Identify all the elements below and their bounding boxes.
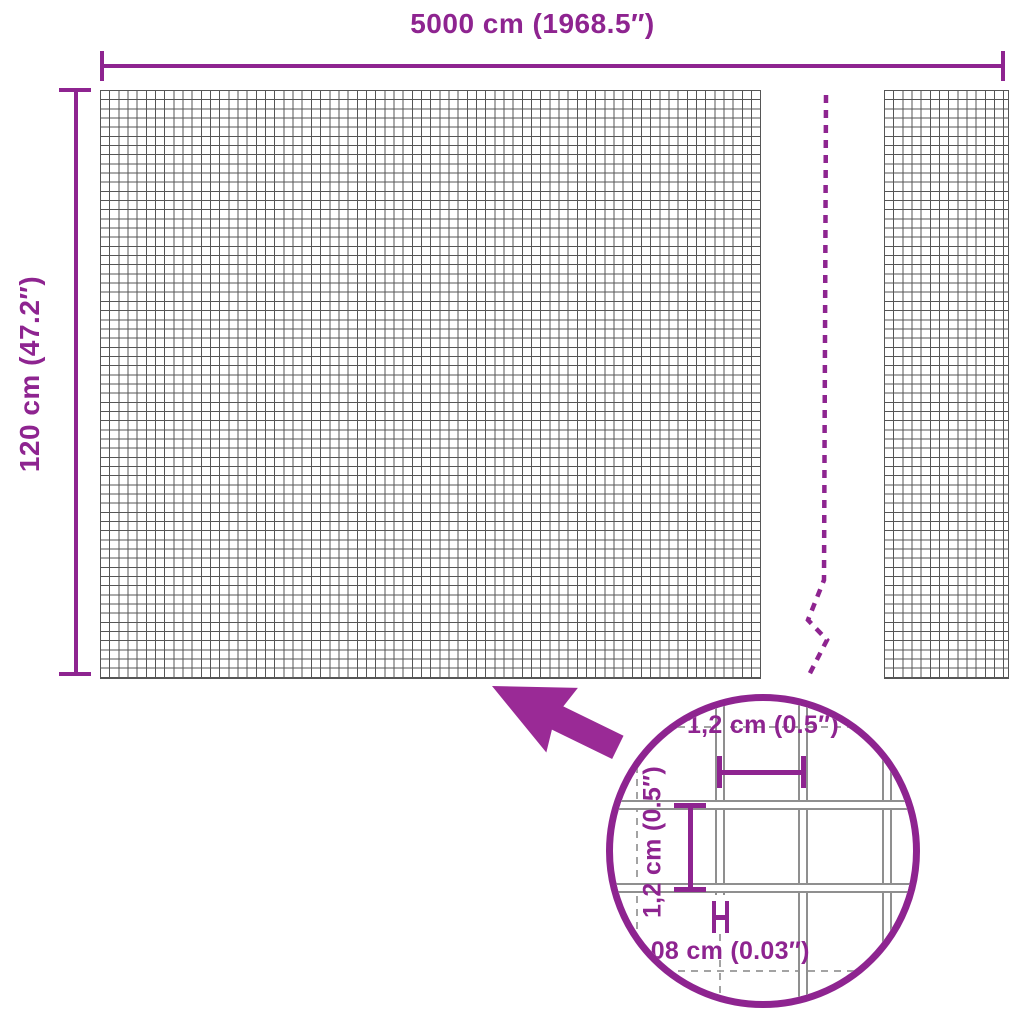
mesh-pitch-horizontal-label: 1,2 cm (0.5″): [653, 711, 873, 740]
mesh-closeup: 1,2 cm (0.5″) 1,2 cm (0.5″) 0,08 cm (0.0…: [613, 701, 913, 1001]
pitch-h-line: [719, 770, 806, 775]
mesh-pitch-vertical-label: 1,2 cm (0.5″): [639, 766, 668, 918]
pitch-v-line: [688, 805, 693, 890]
height-line-bottom-cap: [59, 672, 91, 676]
break-dashed-line-icon: [808, 95, 827, 677]
width-line-left-cap: [100, 51, 104, 81]
width-line-right-cap: [1001, 51, 1005, 81]
pitch-h-left-cap: [717, 756, 722, 788]
height-line: [74, 90, 78, 676]
pitch-h-right-cap: [801, 756, 806, 788]
product-dimension-diagram: 5000 cm (1968.5″) 120 cm (47.2″): [0, 0, 1024, 1024]
mesh-panel-right: [884, 90, 1009, 679]
height-line-top-cap: [59, 88, 91, 92]
wire-vertical-3: [882, 701, 892, 1001]
wire-thickness-label: 0,08 cm (0.03″): [607, 937, 832, 966]
hidden-wire-bottom: [613, 970, 913, 972]
width-line: [102, 64, 1003, 68]
thickness-marker-crossbar: [712, 915, 729, 920]
height-dimension-label: 120 cm (47.2″): [14, 276, 46, 472]
width-dimension-label: 5000 cm (1968.5″): [82, 8, 983, 40]
pitch-v-bottom-cap: [674, 887, 706, 892]
mesh-panel-left: [100, 90, 761, 679]
pitch-v-top-cap: [674, 803, 706, 808]
magnifier-circle-icon: 1,2 cm (0.5″) 1,2 cm (0.5″) 0,08 cm (0.0…: [606, 694, 920, 1008]
